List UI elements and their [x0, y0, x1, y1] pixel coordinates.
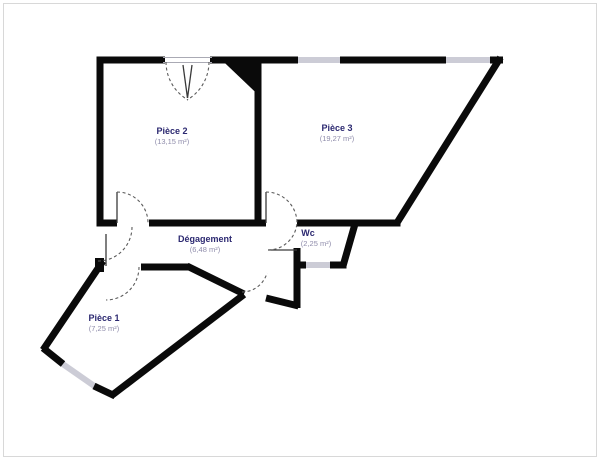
wall-piece1-nw — [43, 261, 103, 350]
room-name-piece1: Pièce 1 — [88, 313, 119, 323]
door-swing-wc — [268, 221, 297, 250]
wall-wc-east — [343, 221, 356, 267]
page-frame — [4, 4, 597, 457]
room-area-piece3: (19,27 m²) — [320, 134, 355, 143]
door-swing-entrance — [98, 227, 132, 261]
walls — [43, 57, 503, 397]
casement-leaf-left — [183, 65, 188, 98]
door-swing-piece3 — [266, 192, 297, 223]
casement-leaf-right — [188, 65, 193, 98]
room-area-degagement: (6,48 m²) — [190, 245, 221, 254]
room-area-wc: (2,25 m²) — [301, 239, 332, 248]
floorplan-canvas: Pièce 2 (13,15 m²) Pièce 3 (19,27 m²) Dé… — [0, 0, 600, 460]
door-swing-piece2 — [117, 192, 148, 223]
wall-hall-diagonal — [187, 266, 244, 294]
wall-piece1-sw-1 — [43, 348, 63, 364]
wall-piece1-se — [111, 295, 244, 397]
wall-piece3-diagonal — [398, 58, 501, 223]
window-piece1 — [62, 364, 95, 387]
room-area-piece1: (7,25 m²) — [89, 324, 120, 333]
room-name-wc: Wc — [301, 228, 315, 238]
doors — [98, 58, 297, 301]
room-labels: Pièce 2 (13,15 m²) Pièce 3 (19,27 m²) Dé… — [88, 123, 354, 333]
windows — [62, 60, 490, 387]
room-name-piece3: Pièce 3 — [321, 123, 352, 133]
door-swing-piece1 — [106, 267, 139, 300]
door-swing-front — [242, 273, 267, 292]
floorplan-svg: Pièce 2 (13,15 m²) Pièce 3 (19,27 m²) Dé… — [0, 0, 600, 460]
room-name-degagement: Dégagement — [178, 234, 232, 244]
room-name-piece2: Pièce 2 — [156, 126, 187, 136]
room-area-piece2: (13,15 m²) — [155, 137, 190, 146]
